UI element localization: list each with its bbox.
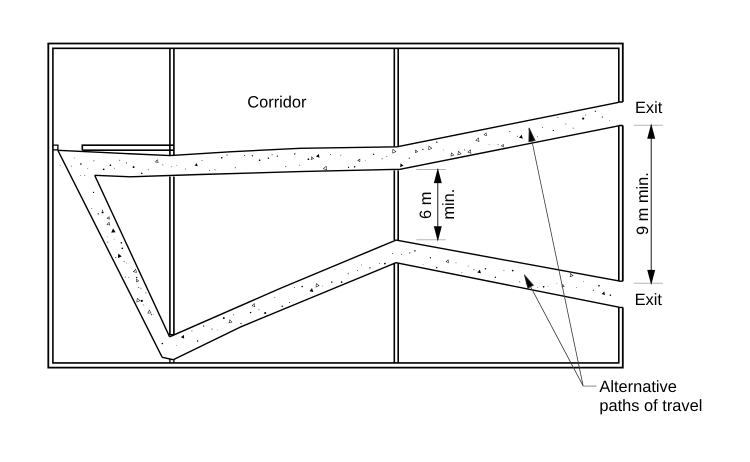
svg-text:Exit: Exit bbox=[635, 291, 663, 309]
svg-text:6 m: 6 m bbox=[417, 192, 435, 219]
svg-text:9 m min.: 9 m min. bbox=[634, 172, 652, 235]
svg-text:Corridor: Corridor bbox=[247, 94, 307, 112]
svg-text:min.: min. bbox=[440, 189, 458, 220]
svg-text:Exit: Exit bbox=[635, 99, 663, 117]
